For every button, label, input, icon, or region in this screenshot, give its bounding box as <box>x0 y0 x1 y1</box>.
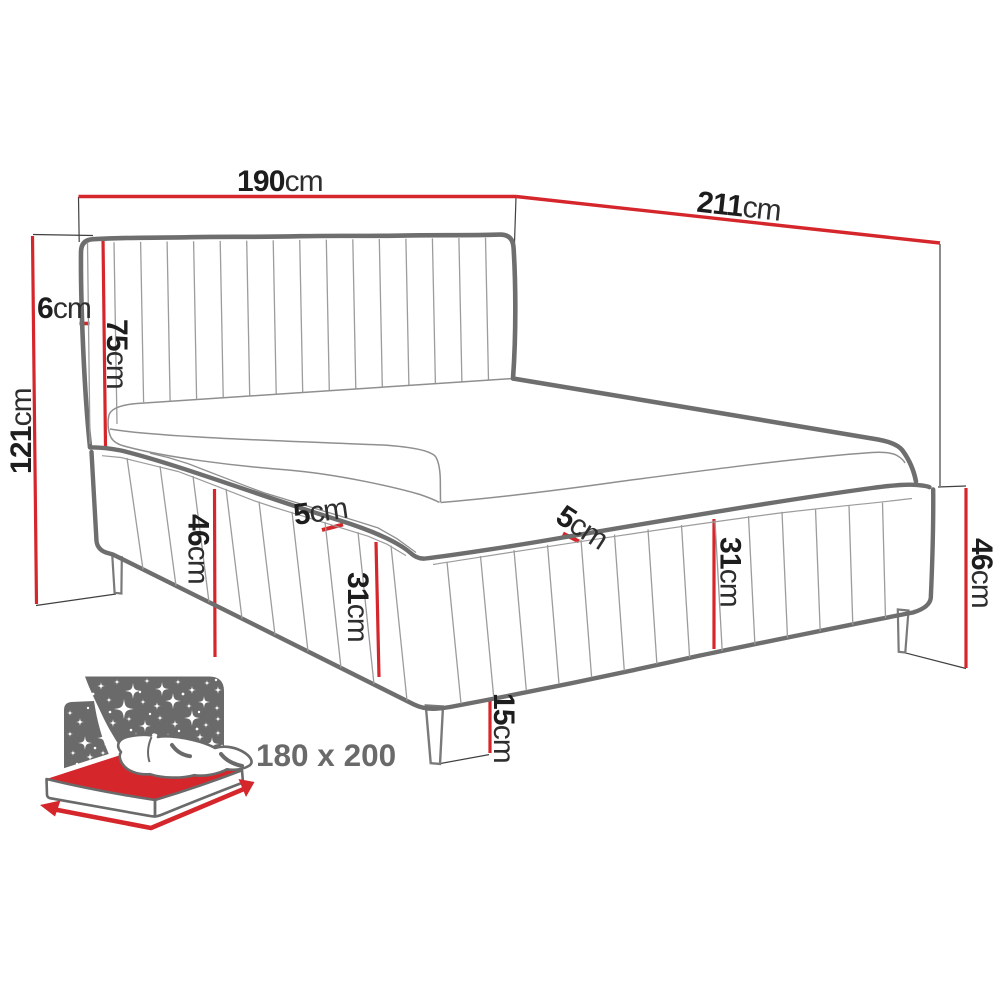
svg-text:190cm: 190cm <box>237 165 323 198</box>
svg-text:6cm: 6cm <box>37 292 91 325</box>
svg-text:180 x 200: 180 x 200 <box>256 737 396 773</box>
svg-text:121cm: 121cm <box>5 388 38 474</box>
svg-text:31cm: 31cm <box>714 537 747 607</box>
svg-text:31cm: 31cm <box>341 572 374 642</box>
svg-text:46cm: 46cm <box>965 538 998 608</box>
svg-text:15cm: 15cm <box>487 693 520 763</box>
svg-text:75cm: 75cm <box>100 319 133 389</box>
svg-text:46cm: 46cm <box>182 514 215 584</box>
